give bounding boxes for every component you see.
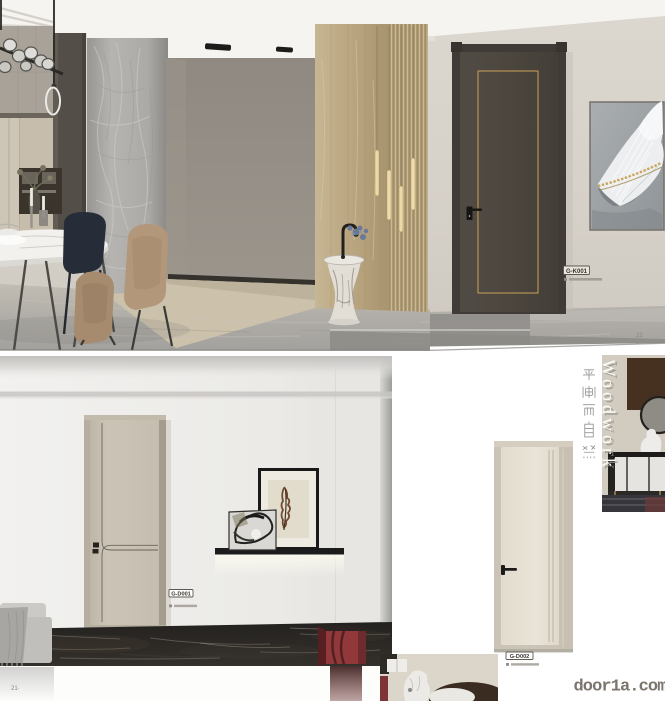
svg-text:G-D002: G-D002 bbox=[510, 654, 530, 660]
svg-text:Woodwork: Woodwork bbox=[599, 360, 619, 472]
svg-text:G-D001: G-D001 bbox=[171, 592, 191, 598]
svg-text:21·: 21· bbox=[11, 686, 20, 692]
svg-text:G-K001: G-K001 bbox=[566, 269, 588, 275]
svg-text:22: 22 bbox=[636, 333, 643, 339]
svg-text:door1a.com: door1a.com bbox=[574, 678, 665, 697]
